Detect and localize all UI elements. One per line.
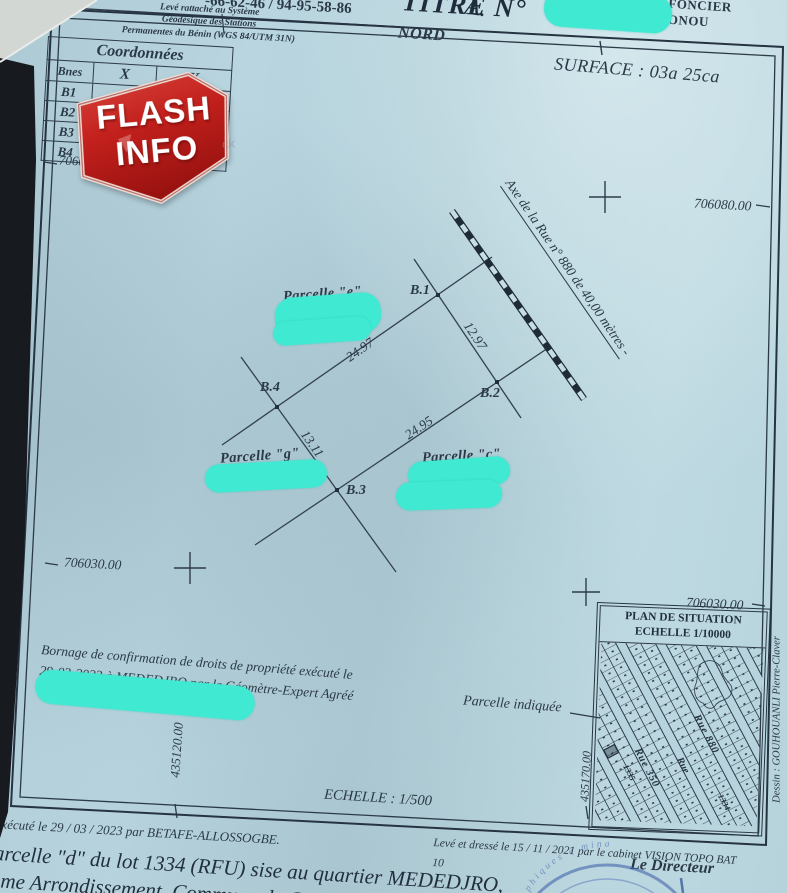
- vertex-label-b1: B.1: [410, 283, 430, 299]
- situation-map-linework: [595, 642, 764, 826]
- survey-document-photo: -66-62-46 / 94-95-58-86 Levé rattaché au…: [0, 0, 787, 893]
- redaction-blob-parcel-c-2: [396, 479, 503, 511]
- situation-map: Rue 880 Rue 350 Rue 1334 1335: [595, 642, 764, 826]
- situation-plan-inner-frame: PLAN DE SITUATION ECHELLE 1/10000: [591, 605, 767, 833]
- drawer-credit-vertical: Dessin : GOUHOUANLI Pierre-Claver: [772, 615, 783, 825]
- vertex-label-b4: B.4: [260, 380, 280, 396]
- grid-label-topright: 706080.00: [694, 196, 752, 215]
- watermark-fragment: ck: [221, 136, 235, 152]
- title-handwritten-mark: A.: [463, 0, 488, 23]
- vertex-label-b3: B.3: [346, 483, 366, 499]
- flash-info-badge: FLASH INFO: [68, 63, 244, 217]
- situation-plan-box: PLAN DE SITUATION ECHELLE 1/10000: [588, 602, 771, 837]
- parcel-boundaries: [222, 257, 551, 572]
- grid-label-midleft: 706030.00: [64, 555, 122, 574]
- vertex-label-b2: B.2: [480, 386, 500, 402]
- north-label: NORD: [397, 25, 445, 46]
- road-axis-band: [452, 211, 584, 399]
